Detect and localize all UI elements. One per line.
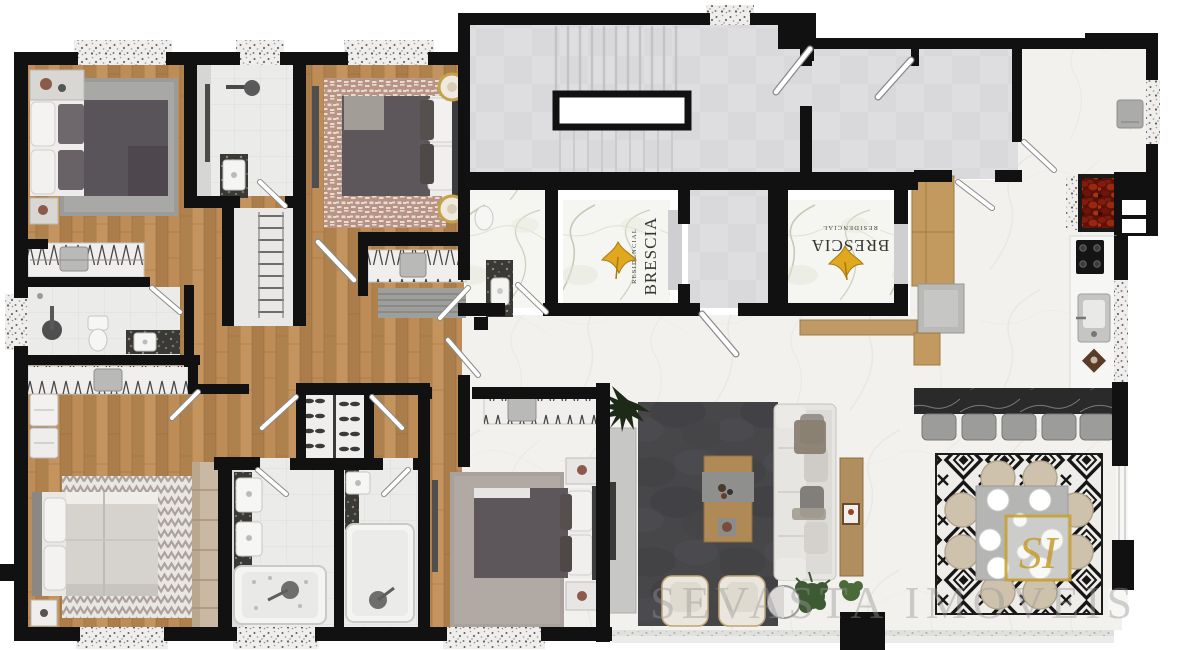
svg-text:BRESCIA: BRESCIA <box>641 217 660 296</box>
svg-text:SI: SI <box>1019 527 1060 578</box>
svg-text:RESIDENCIAL: RESIDENCIAL <box>822 224 878 231</box>
svg-text:SEVASTA IMOVEIS: SEVASTA IMOVEIS <box>650 577 1138 628</box>
